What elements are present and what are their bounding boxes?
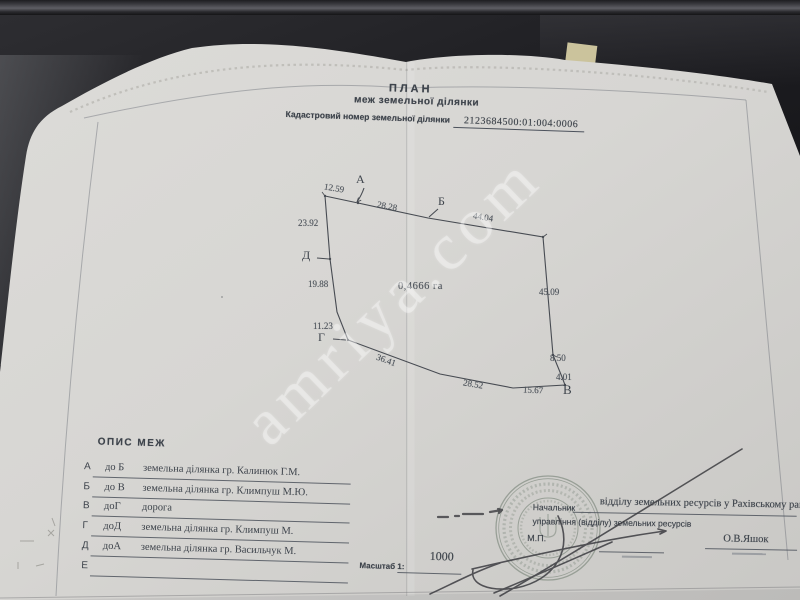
border-row-desc: земельна ділянка гр. Калинюк Г.М. (143, 463, 300, 478)
scale-block: 1000 Масштаб 1: (357, 546, 478, 581)
position-line (573, 512, 797, 517)
vertex-label-g: Г (318, 330, 325, 345)
signature-line (599, 551, 664, 553)
written-department: відділу земельних ресурсів у Рахівському… (600, 496, 800, 511)
measurement-label: 11.23 (313, 321, 333, 331)
borders-heading: ОПИС МЕЖ (98, 437, 166, 450)
measurement-label: 45.09 (539, 287, 559, 297)
approver-name: О.В.Яшок (723, 533, 768, 545)
vertical-crease-line (406, 62, 407, 596)
name-line (705, 548, 797, 551)
borders-section: ОПИС МЕЖ А до Б земельна ділянка гр. Кал… (76, 432, 400, 586)
measurement-label: 4.01 (556, 372, 572, 382)
vertical-crease (408, 62, 415, 596)
border-row-desc: земельна ділянка гр. Васильчук М. (141, 542, 297, 557)
border-row: А до Б земельна ділянка гр. Калинюк Г.М. (79, 461, 379, 484)
border-row-to: доД (103, 521, 121, 532)
border-row-from: В (83, 500, 90, 511)
border-row-desc: земельна ділянка гр. Климпуш М.Ю. (142, 483, 308, 499)
scale-label: Масштаб 1: (359, 561, 404, 571)
border-row-to: до В (104, 482, 125, 494)
scale-value: 1000 (430, 549, 454, 565)
area-label: 0,4666 га (398, 281, 443, 292)
border-row-from: Д (82, 540, 89, 551)
signature-sublabel (622, 556, 652, 559)
border-row-from: А (84, 461, 91, 472)
measurement-label: 23.92 (298, 218, 318, 228)
border-row-to: доГ (104, 501, 121, 512)
border-row: Д доА земельна ділянка гр. Васильчук М. (77, 540, 377, 563)
measurement-label: 19.88 (308, 279, 328, 289)
measurement-label: 8.50 (550, 353, 566, 363)
measurement-label: 15.67 (523, 385, 544, 396)
border-row-to: до Б (105, 462, 125, 474)
border-row-to: доА (103, 541, 121, 553)
department-label: управління (відділу) земельних ресурсів (532, 516, 691, 529)
name-sublabel (732, 553, 766, 556)
border-row-desc: земельна ділянка гр. Климпуш М. (141, 522, 293, 537)
vertex-label-a: А (356, 172, 365, 187)
scale-line (397, 572, 461, 575)
position-label: Начальник (533, 502, 576, 513)
border-row: Г доД земельна ділянка гр. Климпуш М. (77, 520, 377, 543)
border-row-from: Б (83, 481, 90, 492)
seal-mark-label: М.П. (527, 533, 546, 543)
approval-block: відділу земельних ресурсів у Рахівському… (527, 494, 800, 579)
vertex-label-d: Д (302, 248, 310, 263)
vertex-label-b: Б (438, 194, 445, 209)
border-row-from: Г (82, 520, 88, 531)
border-row-from: Е (81, 560, 88, 571)
doc-title: ПЛАН (389, 82, 433, 95)
vertex-label-v: В (563, 382, 572, 398)
document-photo: ПЛАН меж земельної ділянки Кадастровий н… (0, 0, 800, 600)
cadastral-label: Кадастровий номер земельної ділянки (285, 109, 450, 125)
border-row-desc: дорога (142, 502, 172, 514)
